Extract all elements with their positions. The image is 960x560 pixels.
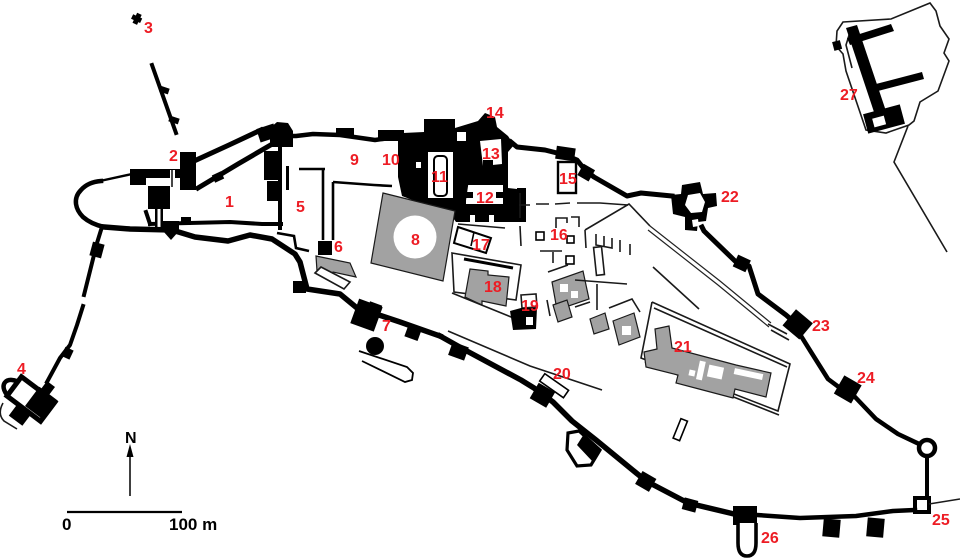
svg-text:100 m: 100 m xyxy=(169,515,217,534)
svg-text:4: 4 xyxy=(17,361,26,378)
svg-text:17: 17 xyxy=(472,237,490,254)
svg-text:27: 27 xyxy=(840,87,858,104)
svg-text:15: 15 xyxy=(559,171,577,188)
svg-text:N: N xyxy=(125,430,137,447)
svg-text:18: 18 xyxy=(484,279,502,296)
svg-text:11: 11 xyxy=(431,169,448,186)
svg-text:6: 6 xyxy=(334,239,343,256)
svg-text:7: 7 xyxy=(382,318,391,335)
svg-text:2: 2 xyxy=(169,148,178,165)
svg-text:25: 25 xyxy=(932,512,950,529)
svg-text:8: 8 xyxy=(411,232,420,249)
svg-text:22: 22 xyxy=(721,189,739,206)
svg-text:5: 5 xyxy=(296,199,305,216)
svg-text:21: 21 xyxy=(674,339,692,356)
svg-text:24: 24 xyxy=(857,370,875,387)
svg-text:9: 9 xyxy=(350,152,359,169)
svg-text:0: 0 xyxy=(62,515,71,534)
svg-text:3: 3 xyxy=(144,20,153,37)
svg-text:10: 10 xyxy=(382,152,400,169)
svg-text:19: 19 xyxy=(521,298,539,315)
svg-text:12: 12 xyxy=(476,190,494,207)
svg-text:13: 13 xyxy=(482,146,500,163)
svg-text:23: 23 xyxy=(812,318,830,335)
svg-text:26: 26 xyxy=(761,530,779,547)
svg-text:20: 20 xyxy=(553,366,571,383)
svg-text:1: 1 xyxy=(225,194,234,211)
svg-text:16: 16 xyxy=(550,227,568,244)
svg-text:14: 14 xyxy=(486,105,504,122)
